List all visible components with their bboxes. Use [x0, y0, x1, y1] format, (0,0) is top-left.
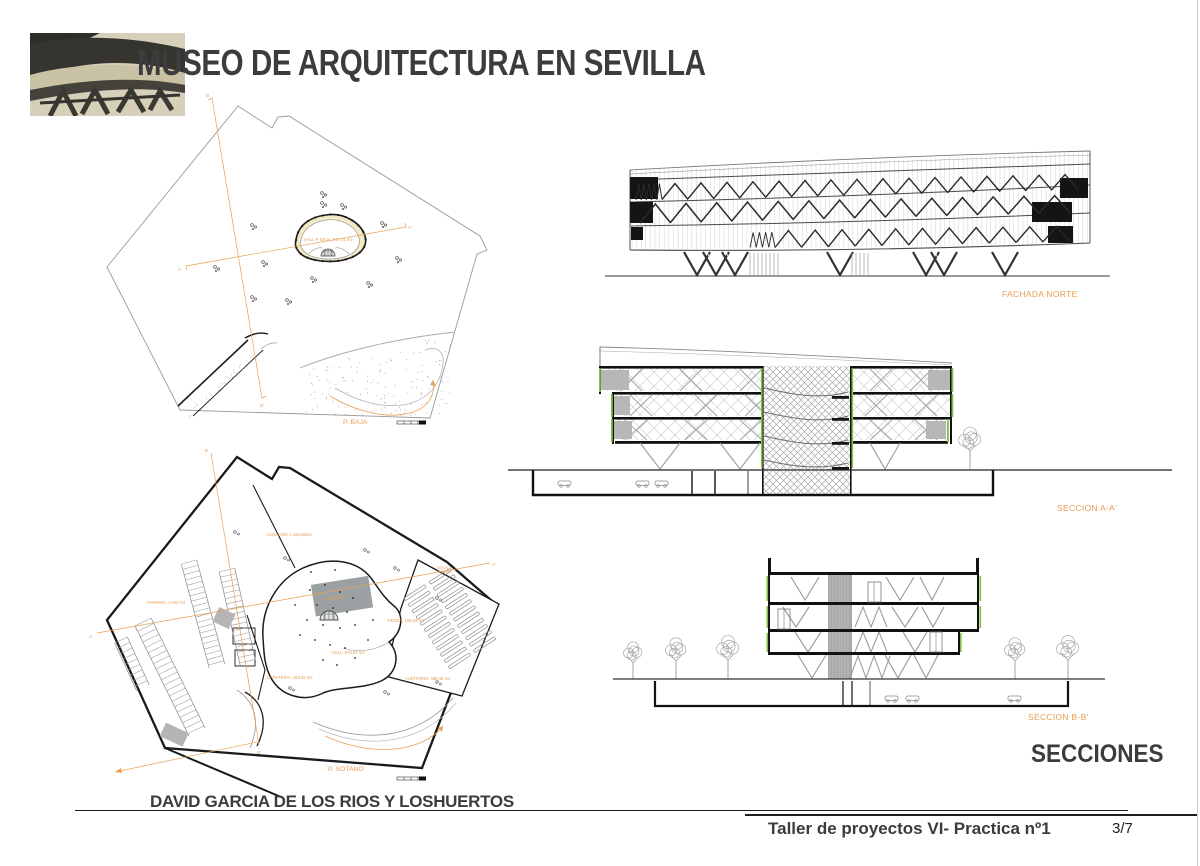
sotano-plan-label: P. SOTANO [328, 766, 364, 773]
sotano-marker-a-end: A' [492, 562, 496, 567]
seccion-b-braces [783, 577, 944, 678]
seccion-b-building [767, 558, 982, 679]
course-title: Taller de proyectos VI- Practica nº1 [768, 819, 1051, 839]
auditorio-label: AUDITORIO: 388,46 m2 [405, 676, 451, 681]
north-elevation-drawing [600, 140, 1120, 290]
almacen-label: ALMACEN: 1.344,86m2 [267, 532, 312, 537]
seccion-b-cars [885, 696, 1021, 702]
fachada-black-panels [630, 177, 1088, 243]
baja-site-boundary [107, 106, 487, 418]
fachada-norte-label: FACHADA NORTE [1002, 289, 1078, 299]
sotano-marker-b: B [205, 448, 208, 453]
seccion-b-label: SECCION B-B' [1028, 712, 1088, 722]
page-number: 3/7 [1112, 820, 1133, 837]
tienda-label: TIENDA: 195,03 m2 [387, 618, 425, 623]
seccion-b-core-stripes [830, 575, 848, 679]
plan-sotano-drawing: ASCENSOR B B' A A' ALMACEN: 1.344,86m2 P [85, 440, 515, 800]
parking-label: PARKING: 1.943 m2 [147, 600, 186, 605]
baja-scale-bar [397, 421, 426, 425]
sotano-scale-bar [397, 777, 426, 781]
presentation-sheet: MUSEO DE ARQUITECTURA EN SEVILLA [0, 0, 1200, 866]
baja-hall-label: HALL P. BAJA: 917,31 m2 [304, 237, 353, 242]
seccion-b-basement [655, 681, 1068, 706]
seccion-a-core [762, 366, 852, 494]
section-bb-drawing [600, 550, 1120, 720]
author-name: DAVID GARCIA DE LOS RIOS Y LOSHUERTOS [150, 792, 514, 812]
sotano-marker-b-end: B' [257, 750, 261, 755]
baja-marker-b: B [206, 93, 209, 98]
page-title: MUSEO DE ARQUITECTURA EN SEVILLA [137, 42, 706, 84]
seccion-a-cars [558, 481, 668, 487]
seccion-a-label: SECCION A-A' [1057, 503, 1117, 513]
hall-label: HALL: 876,51 m2 [332, 650, 365, 655]
seccion-a-tree [959, 427, 981, 469]
sotano-marker-a: A [89, 634, 92, 639]
baja-marker-b-end: B' [260, 403, 264, 408]
baja-marker-a: A [178, 267, 181, 272]
baja-marker-a-end: A' [408, 225, 412, 230]
page-edge-line [1197, 0, 1198, 866]
fachada-support-legs [684, 252, 1018, 275]
cafeteria-label: CAFETERIA: 163,82 m2 [267, 675, 313, 680]
aseos-label-2: 45,06 m2 [437, 570, 451, 574]
fachada-trusses [636, 175, 1078, 248]
seccion-a-building [599, 347, 953, 494]
plan-baja-drawing: B B' A A' HALL P. BAJA: 917,31 m2 P. BAJ… [85, 88, 505, 438]
footer-rule-right [745, 814, 1197, 816]
baja-plan-label: P. BAJA [343, 419, 368, 426]
secciones-heading: SECCIONES [1031, 740, 1164, 769]
section-aa-drawing [500, 330, 1180, 510]
